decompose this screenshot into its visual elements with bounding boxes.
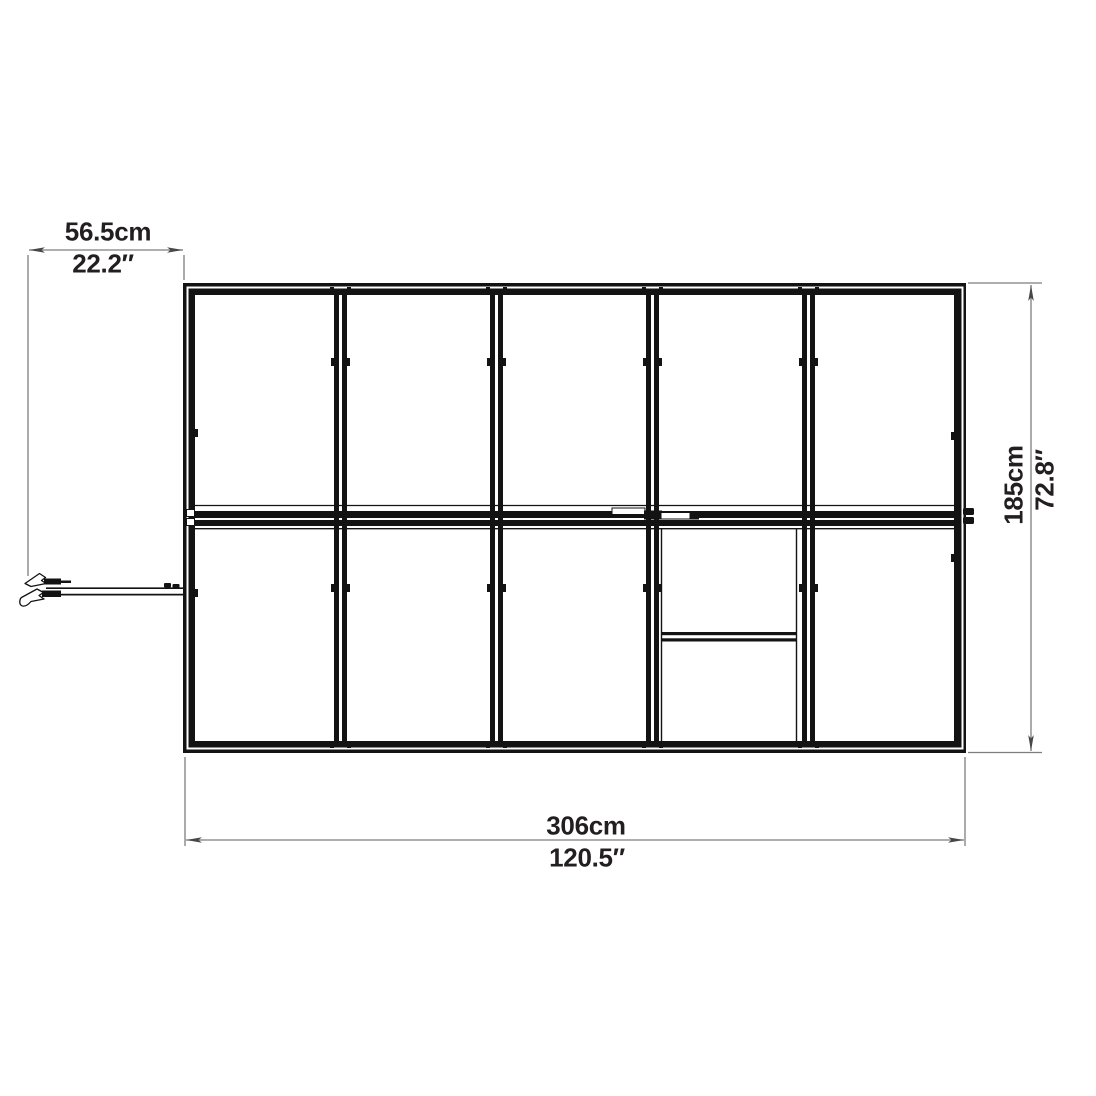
- dimension-linework: [28, 247, 1042, 846]
- depth-metric-label: 185cm: [999, 445, 1030, 524]
- left-offset-metric-label: 56.5cm: [65, 217, 151, 248]
- width-metric-label: 306cm: [546, 811, 625, 842]
- door-divider: [662, 632, 797, 635]
- width-imperial-label: 120.5″: [549, 843, 625, 874]
- left-offset-imperial-label: 22.2″: [72, 249, 134, 280]
- center-rail: [187, 506, 975, 529]
- rail-right-tab: [963, 508, 974, 515]
- handle-assembly: [20, 574, 186, 607]
- greenhouse-top-view-drawing: [0, 0, 1096, 1096]
- door-divider: [662, 638, 797, 641]
- handle-wing-lower: [20, 589, 44, 606]
- diagram-canvas: 56.5cm 22.2″ 185cm 72.8″ 306cm 120.5″: [0, 0, 1096, 1096]
- dimension-left-offset: [28, 247, 184, 576]
- depth-imperial-label: 72.8″: [1030, 449, 1061, 511]
- door-panel: [662, 529, 797, 741]
- rail-right-tab: [963, 517, 974, 524]
